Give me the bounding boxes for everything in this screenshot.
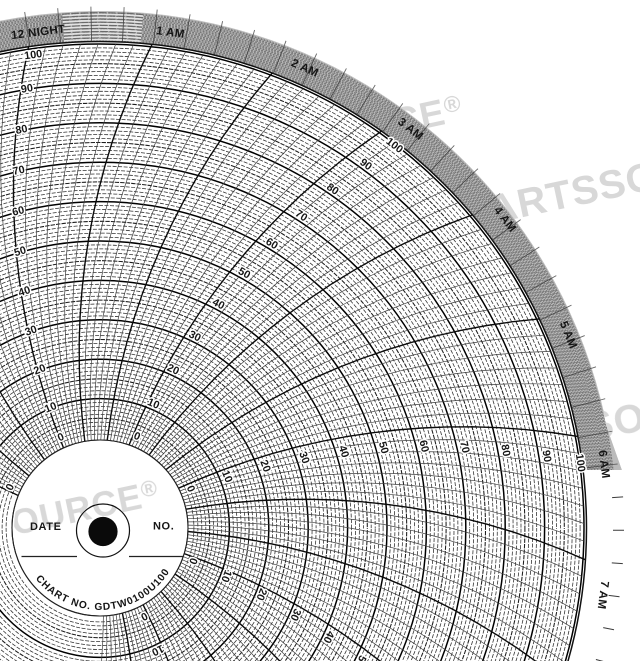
svg-text:80: 80 [498,443,512,457]
svg-text:80: 80 [15,123,29,137]
svg-text:100: 100 [24,48,44,62]
svg-text:90: 90 [20,82,34,96]
svg-text:100: 100 [573,453,587,472]
svg-text:70: 70 [457,440,471,454]
svg-text:NO.: NO. [153,521,174,533]
svg-text:90: 90 [540,449,554,463]
